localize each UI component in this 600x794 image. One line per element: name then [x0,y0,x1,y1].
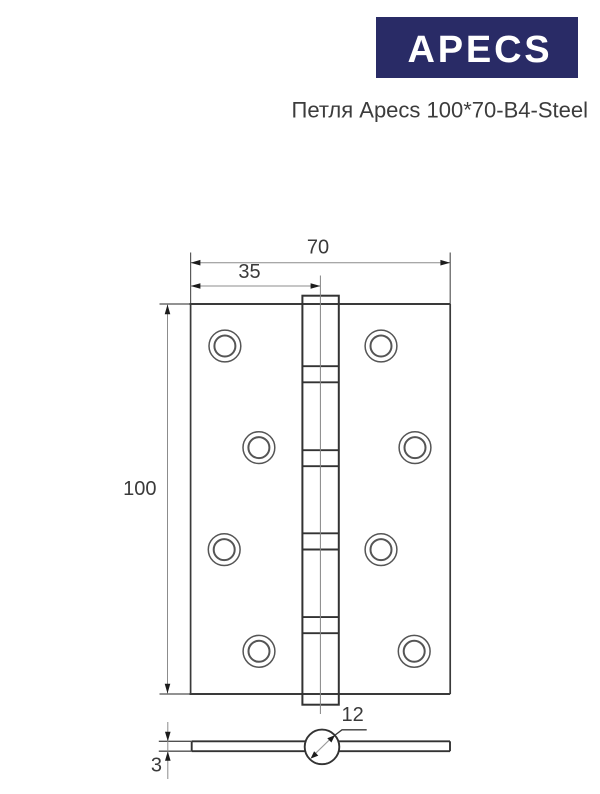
svg-text:Петля Apecs 100*70-B4-Steel: Петля Apecs 100*70-B4-Steel [292,98,588,123]
svg-text:35: 35 [238,261,260,283]
svg-text:APECS: APECS [408,29,553,71]
svg-text:12: 12 [341,704,363,726]
svg-text:70: 70 [307,237,329,259]
svg-text:3: 3 [151,755,162,777]
svg-text:100: 100 [123,478,156,500]
